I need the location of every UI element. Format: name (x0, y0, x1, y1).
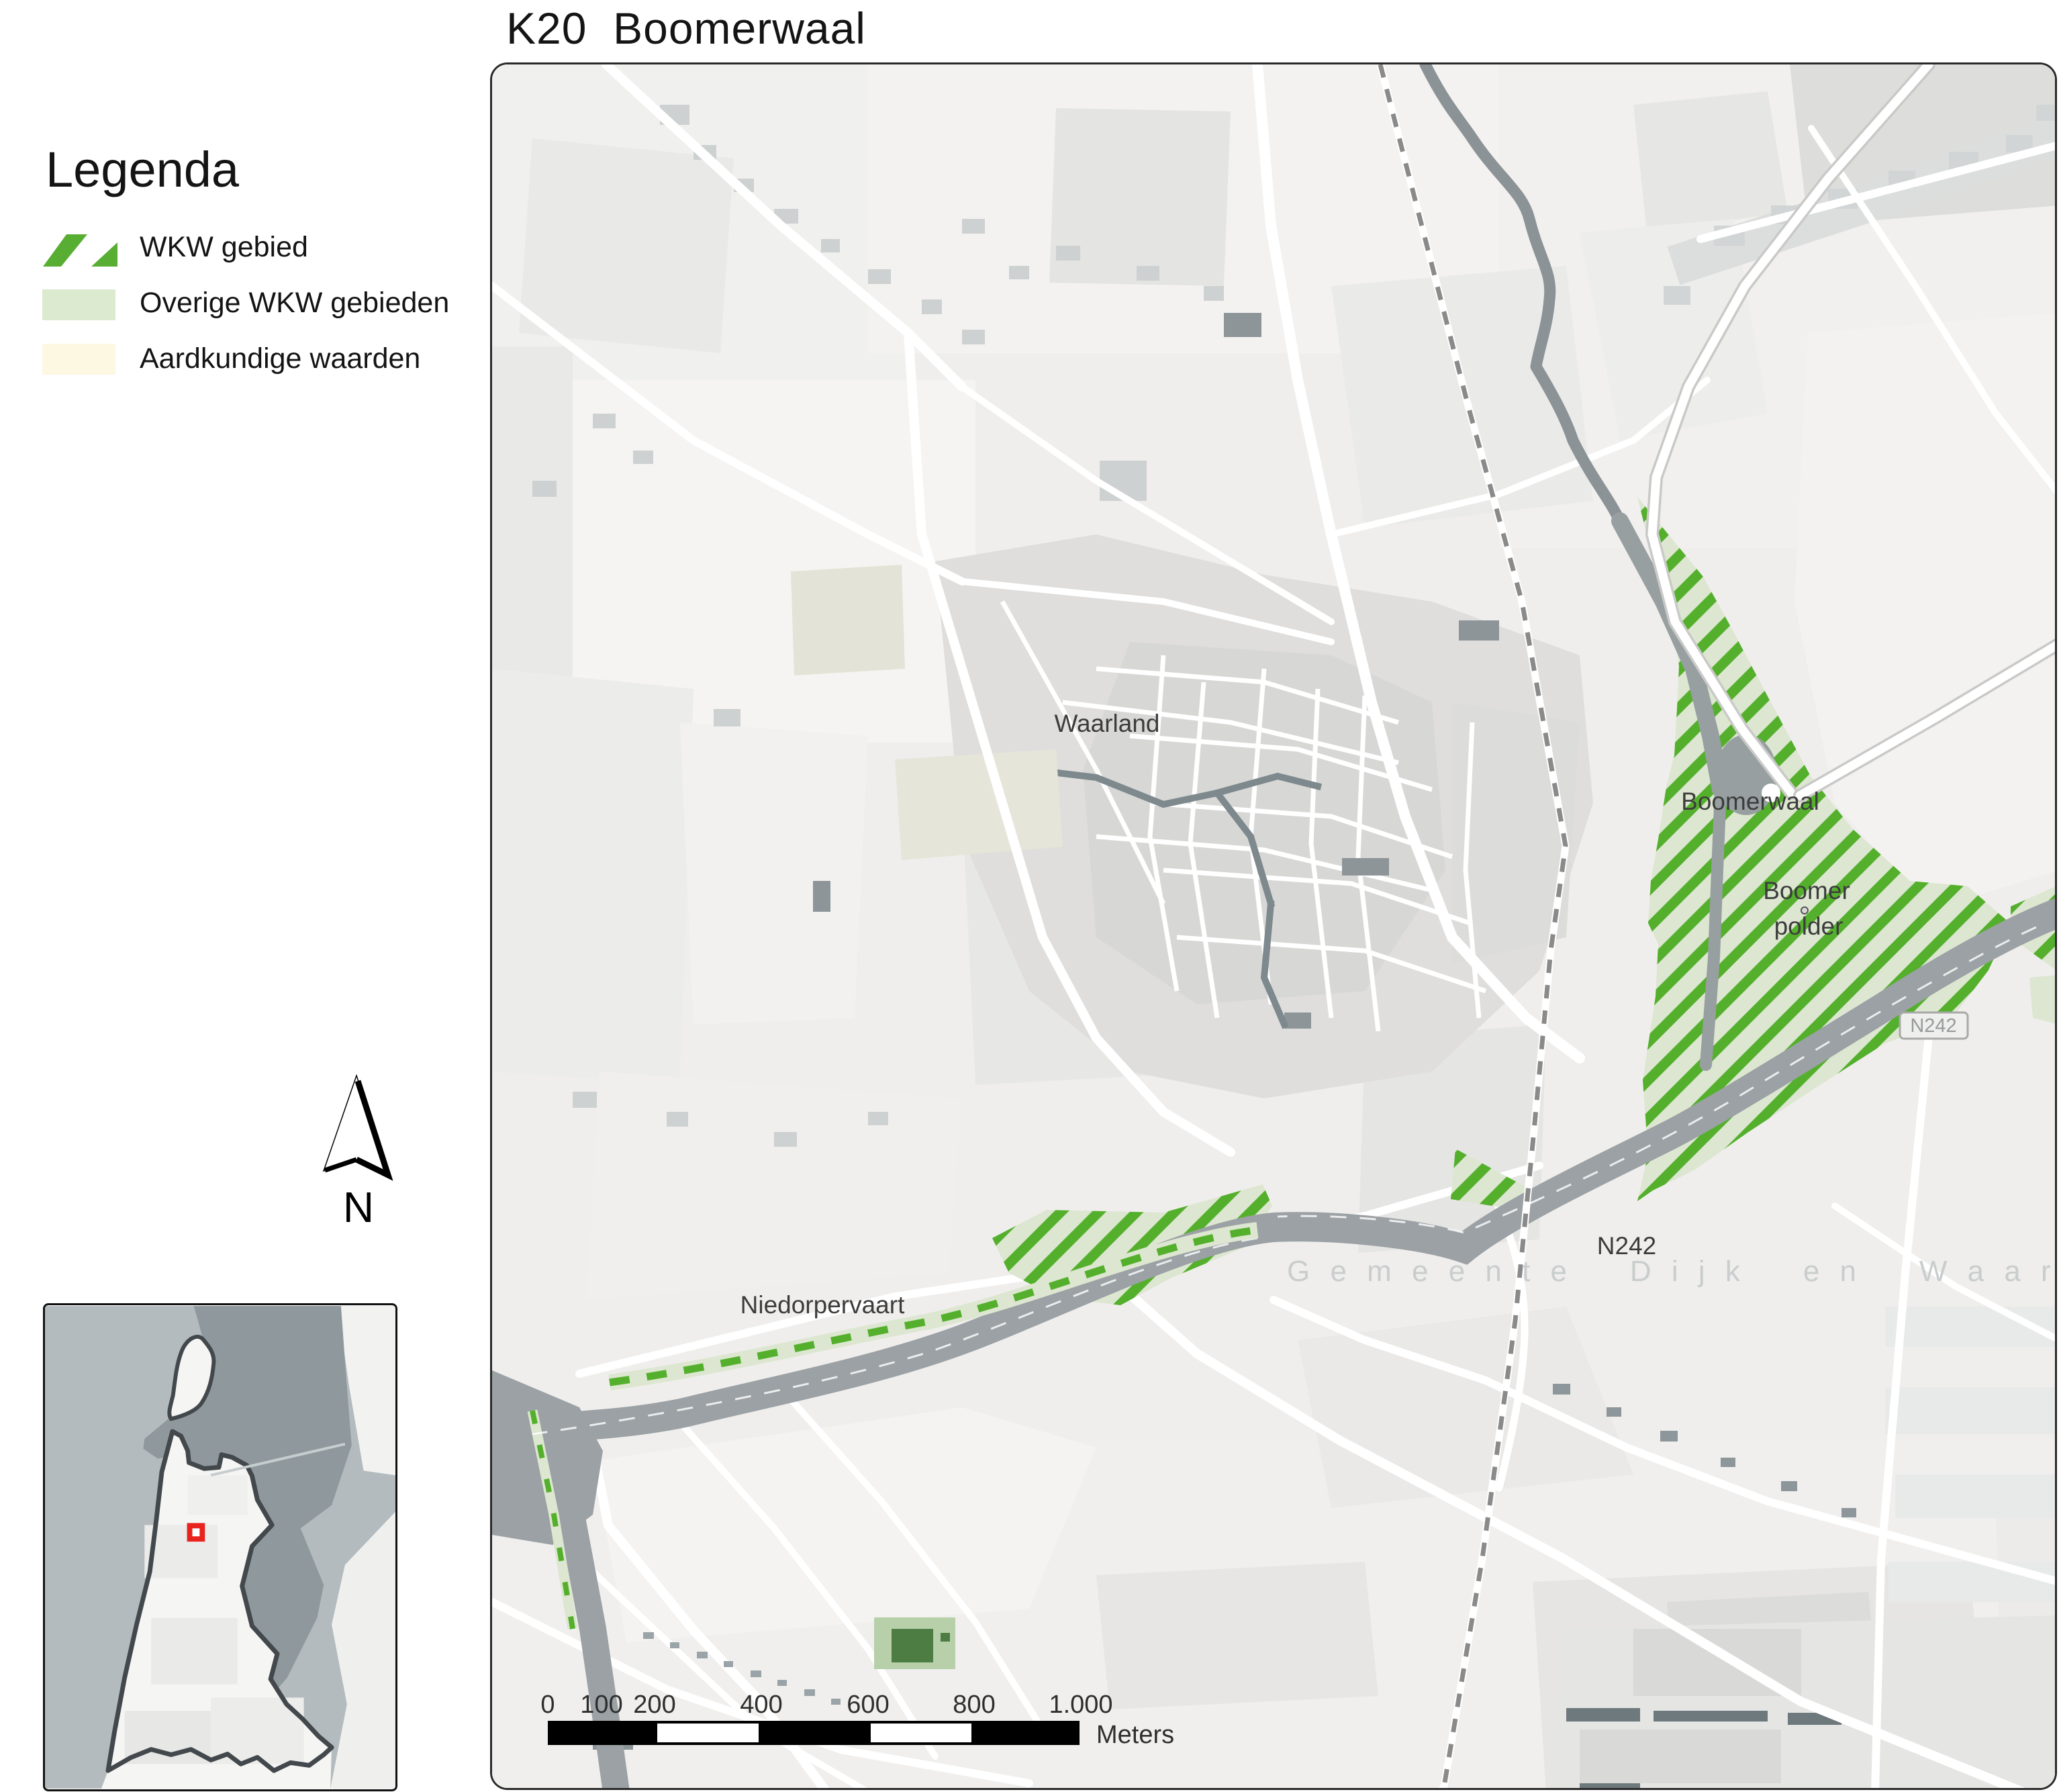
svg-text:1.000: 1.000 (1049, 1691, 1112, 1719)
svg-text:0: 0 (540, 1691, 555, 1719)
svg-text:Boomer: Boomer (1763, 877, 1850, 904)
svg-text:N242: N242 (1597, 1232, 1656, 1260)
svg-text:polder: polder (1774, 912, 1843, 940)
svg-text:Niedorpervaart: Niedorpervaart (740, 1291, 905, 1319)
svg-text:G e m e e n t e D i j k: G e m e e n t e D i j k e n W a a r d (1287, 1255, 2057, 1288)
svg-text:Meters: Meters (1096, 1721, 1174, 1749)
svg-text:100: 100 (580, 1691, 622, 1719)
svg-text:200: 200 (633, 1691, 675, 1719)
svg-text:Waarland: Waarland (1055, 710, 1160, 737)
svg-text:N: N (343, 1183, 374, 1231)
svg-text:400: 400 (740, 1691, 782, 1719)
svg-text:Boomerwaal: Boomerwaal (1681, 788, 1819, 815)
svg-text:N242: N242 (1910, 1015, 1956, 1037)
svg-text:800: 800 (953, 1691, 995, 1719)
svg-text:600: 600 (847, 1691, 889, 1719)
